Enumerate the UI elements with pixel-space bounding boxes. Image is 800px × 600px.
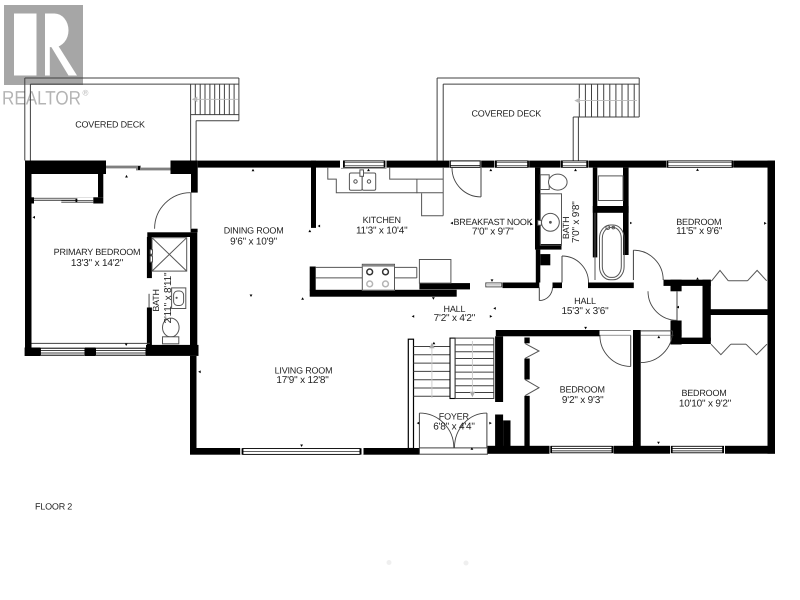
svg-text:PRIMARY BEDROOM: PRIMARY BEDROOM <box>54 247 141 257</box>
svg-text:10'10" x 9'2": 10'10" x 9'2" <box>679 398 732 409</box>
svg-text:11'5" x 9'6": 11'5" x 9'6" <box>676 226 723 237</box>
svg-text:2'11" x 8'11": 2'11" x 8'11" <box>163 272 174 323</box>
svg-text:BATH: BATH <box>561 217 571 240</box>
svg-text:15'3" x 3'6": 15'3" x 3'6" <box>562 306 610 317</box>
svg-text:11'3" x 10'4": 11'3" x 10'4" <box>356 225 408 236</box>
svg-text:7'0" x 9'8": 7'0" x 9'8" <box>571 201 582 243</box>
svg-text:17'9" x 12'8": 17'9" x 12'8" <box>276 375 329 386</box>
svg-text:KITCHEN: KITCHEN <box>363 215 401 225</box>
svg-text:7'2" x 4'2": 7'2" x 4'2" <box>434 313 476 324</box>
svg-text:®: ® <box>83 89 89 98</box>
svg-text:DINING ROOM: DINING ROOM <box>224 226 284 236</box>
svg-text:7'0" x 9'7": 7'0" x 9'7" <box>472 227 514 238</box>
svg-text:BREAKFAST NOOK: BREAKFAST NOOK <box>453 217 532 227</box>
svg-text:13'3" x 14'2": 13'3" x 14'2" <box>71 258 124 269</box>
svg-text:BEDROOM: BEDROOM <box>681 388 726 398</box>
svg-text:9'6" x 10'9": 9'6" x 10'9" <box>230 237 278 248</box>
svg-text:HALL: HALL <box>574 296 596 306</box>
svg-text:6'8" x 4'4": 6'8" x 4'4" <box>433 421 475 432</box>
svg-text:FOYER: FOYER <box>439 411 470 421</box>
svg-text:BATH: BATH <box>151 289 161 312</box>
svg-text:9'2" x 9'3": 9'2" x 9'3" <box>562 395 604 406</box>
svg-text:COVERED DECK: COVERED DECK <box>471 109 541 119</box>
svg-text:BEDROOM: BEDROOM <box>560 384 605 394</box>
svg-text:FLOOR 2: FLOOR 2 <box>35 502 72 512</box>
svg-text:REALTOR: REALTOR <box>2 88 81 110</box>
svg-text:COVERED DECK: COVERED DECK <box>75 120 145 130</box>
